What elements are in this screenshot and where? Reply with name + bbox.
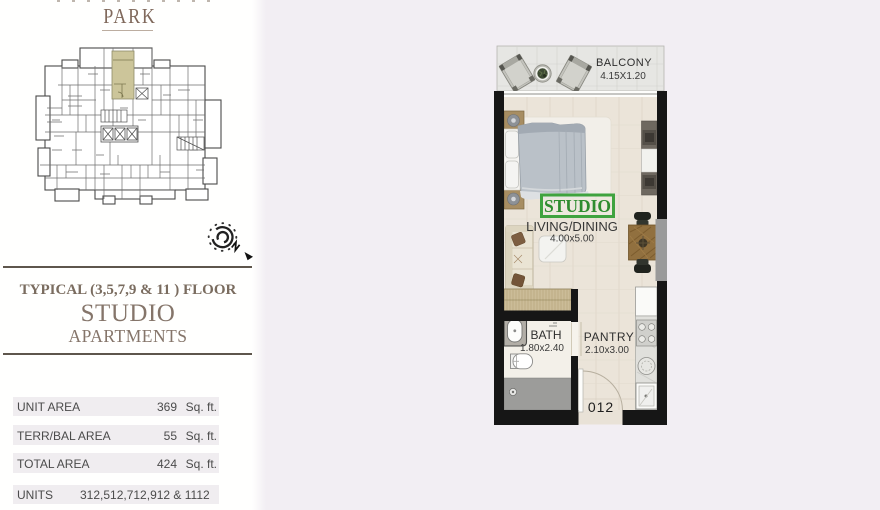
svg-text:LIVING/DINING: LIVING/DINING (526, 219, 618, 234)
svg-text:4.15X1.20: 4.15X1.20 (600, 71, 646, 82)
svg-text:4.00x5.00: 4.00x5.00 (550, 234, 594, 245)
svg-text:STUDIO: STUDIO (544, 196, 611, 216)
svg-text:012: 012 (588, 399, 614, 415)
svg-text:2.10x3.00: 2.10x3.00 (585, 345, 629, 356)
svg-text:BATH: BATH (530, 328, 561, 342)
svg-text:1.80x2.40: 1.80x2.40 (520, 343, 564, 354)
svg-text:PANTRY: PANTRY (584, 330, 635, 344)
svg-text:BALCONY: BALCONY (596, 57, 652, 69)
